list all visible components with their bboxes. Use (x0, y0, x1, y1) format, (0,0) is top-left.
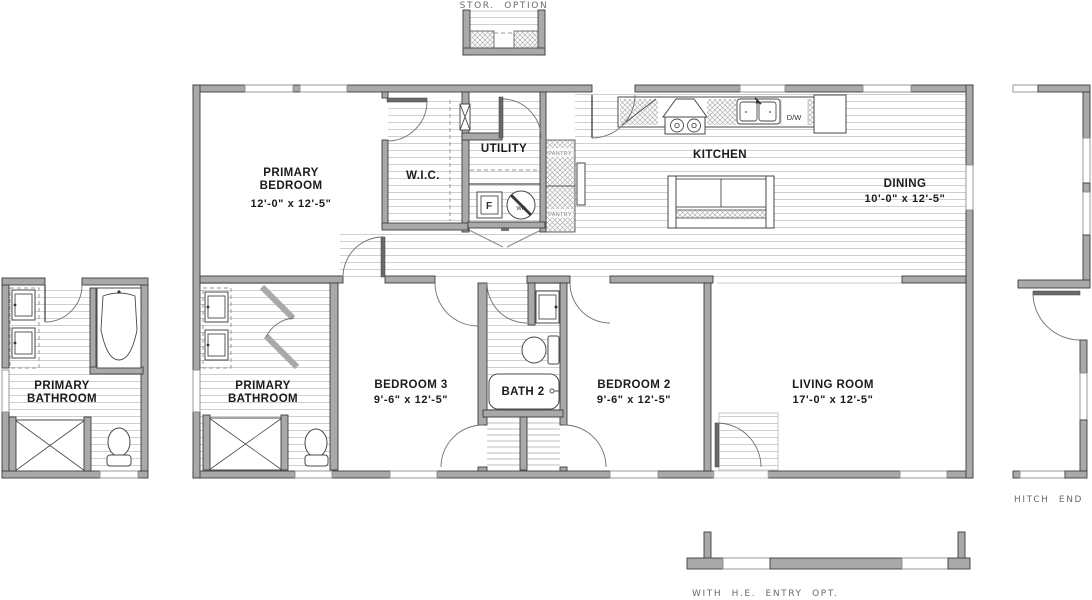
primary-bedroom-label-2: BEDROOM (260, 180, 323, 192)
primary-bathroom-option-label-1: PRIMARY (34, 380, 89, 392)
bedroom3-label: BEDROOM 3 (374, 379, 447, 391)
floor-plan-page: STOR. OPTION PRIMARY BEDROOM 12'-0" x 12… (0, 0, 1092, 600)
shower (203, 415, 288, 470)
primary-bedroom-door (381, 237, 385, 277)
water-heater-label: WH (516, 206, 525, 212)
furnace-label: F (486, 201, 492, 212)
primary-bathroom-label-2: BATHROOM (228, 393, 298, 405)
kitchen-label: KITCHEN (693, 149, 747, 161)
hitch-end-option-unit (1013, 85, 1090, 478)
storage-option-label: STOR. OPTION (460, 1, 549, 11)
wall-chase-icon (460, 104, 470, 130)
dishwasher-label: D/W (787, 113, 803, 122)
vanity-sink-1 (205, 292, 228, 322)
primary-bedroom-dims: 12'-0" x 12'-5" (251, 198, 332, 210)
entry-steps (719, 413, 778, 470)
kitchen-sink (737, 98, 780, 124)
kitchen-island (668, 176, 774, 228)
bath2-label: BATH 2 (501, 386, 544, 398)
option-shower (9, 417, 91, 471)
pantry-upper-label: PANTRY (548, 151, 572, 157)
primary-bathroom-label-1: PRIMARY (235, 380, 290, 392)
primary-bathroom-option-label-2: BATHROOM (27, 393, 97, 405)
bath2-toilet (522, 336, 559, 364)
bedroom2-door (570, 283, 610, 323)
utility-label: UTILITY (481, 143, 527, 155)
bedroom2-label: BEDROOM 2 (597, 379, 670, 391)
wic-door (387, 98, 427, 102)
garden-tub (97, 288, 141, 368)
option-vanity-sink-2 (12, 328, 35, 358)
living-room-dims: 17'-0" x 12'-5" (793, 394, 874, 406)
option-vanity-sink-1 (12, 290, 35, 320)
hitch-end-door (1033, 291, 1080, 295)
bedroom3-door (435, 283, 478, 326)
he-entry-option-unit (687, 532, 970, 569)
pantry-door (577, 163, 585, 205)
wic-label: W.I.C. (406, 170, 440, 182)
bedroom3-closet-door (441, 425, 483, 467)
he-entry-option-label: WITH H.E. ENTRY OPT. (692, 589, 838, 599)
refrigerator (814, 95, 846, 133)
dining-label: DINING (884, 178, 927, 190)
vanity-sink-2 (205, 330, 228, 360)
pantry-lower-label: PANTRY (548, 212, 572, 218)
utility-door (499, 97, 503, 138)
living-room-label: LIVING ROOM (792, 379, 874, 391)
bath2-sink (536, 291, 559, 323)
entry-threshold (714, 471, 768, 478)
dining-dims: 10'-0" x 12'-5" (865, 193, 946, 205)
primary-bedroom-label-1: PRIMARY (263, 167, 318, 179)
toilet (305, 429, 328, 466)
hitch-end-option-label: HITCH END OPT. (1014, 495, 1092, 505)
bedroom2-dims: 9'-6" x 12'-5" (597, 394, 671, 406)
floor-plan-canvas: STOR. OPTION PRIMARY BEDROOM 12'-0" x 12… (0, 0, 1092, 600)
water-heater (507, 191, 535, 219)
bedroom2-closet-door (564, 425, 606, 467)
option-toilet (107, 428, 131, 466)
bedroom3-dims: 9'-6" x 12'-5" (374, 394, 448, 406)
storage-option-unit (463, 10, 545, 55)
living-entry-door (715, 423, 719, 467)
